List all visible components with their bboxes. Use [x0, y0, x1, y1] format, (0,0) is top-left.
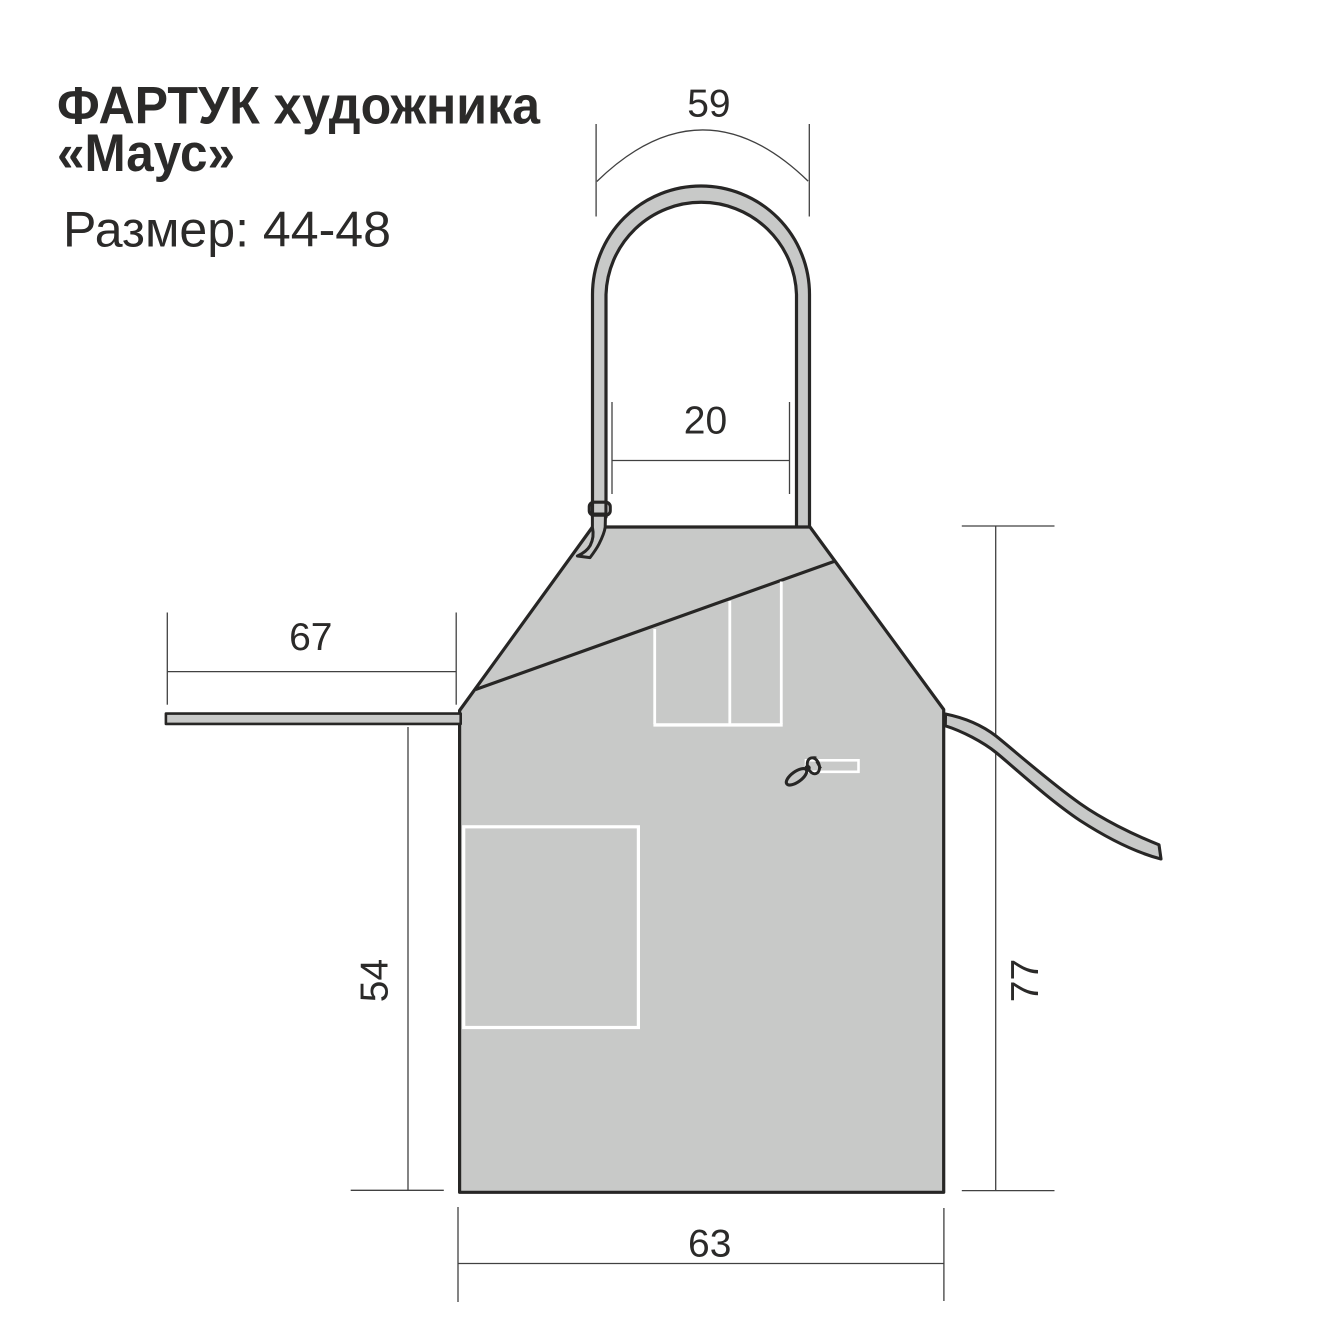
svg-text:67: 67 — [289, 616, 332, 659]
svg-text:63: 63 — [688, 1223, 731, 1266]
svg-text:54: 54 — [354, 959, 397, 1002]
svg-text:20: 20 — [684, 400, 727, 443]
svg-text:59: 59 — [687, 83, 730, 126]
svg-text:77: 77 — [1004, 959, 1047, 1002]
svg-text:«Маус»: «Маус» — [57, 124, 235, 183]
svg-text:Размер: 44-48: Размер: 44-48 — [63, 202, 391, 258]
